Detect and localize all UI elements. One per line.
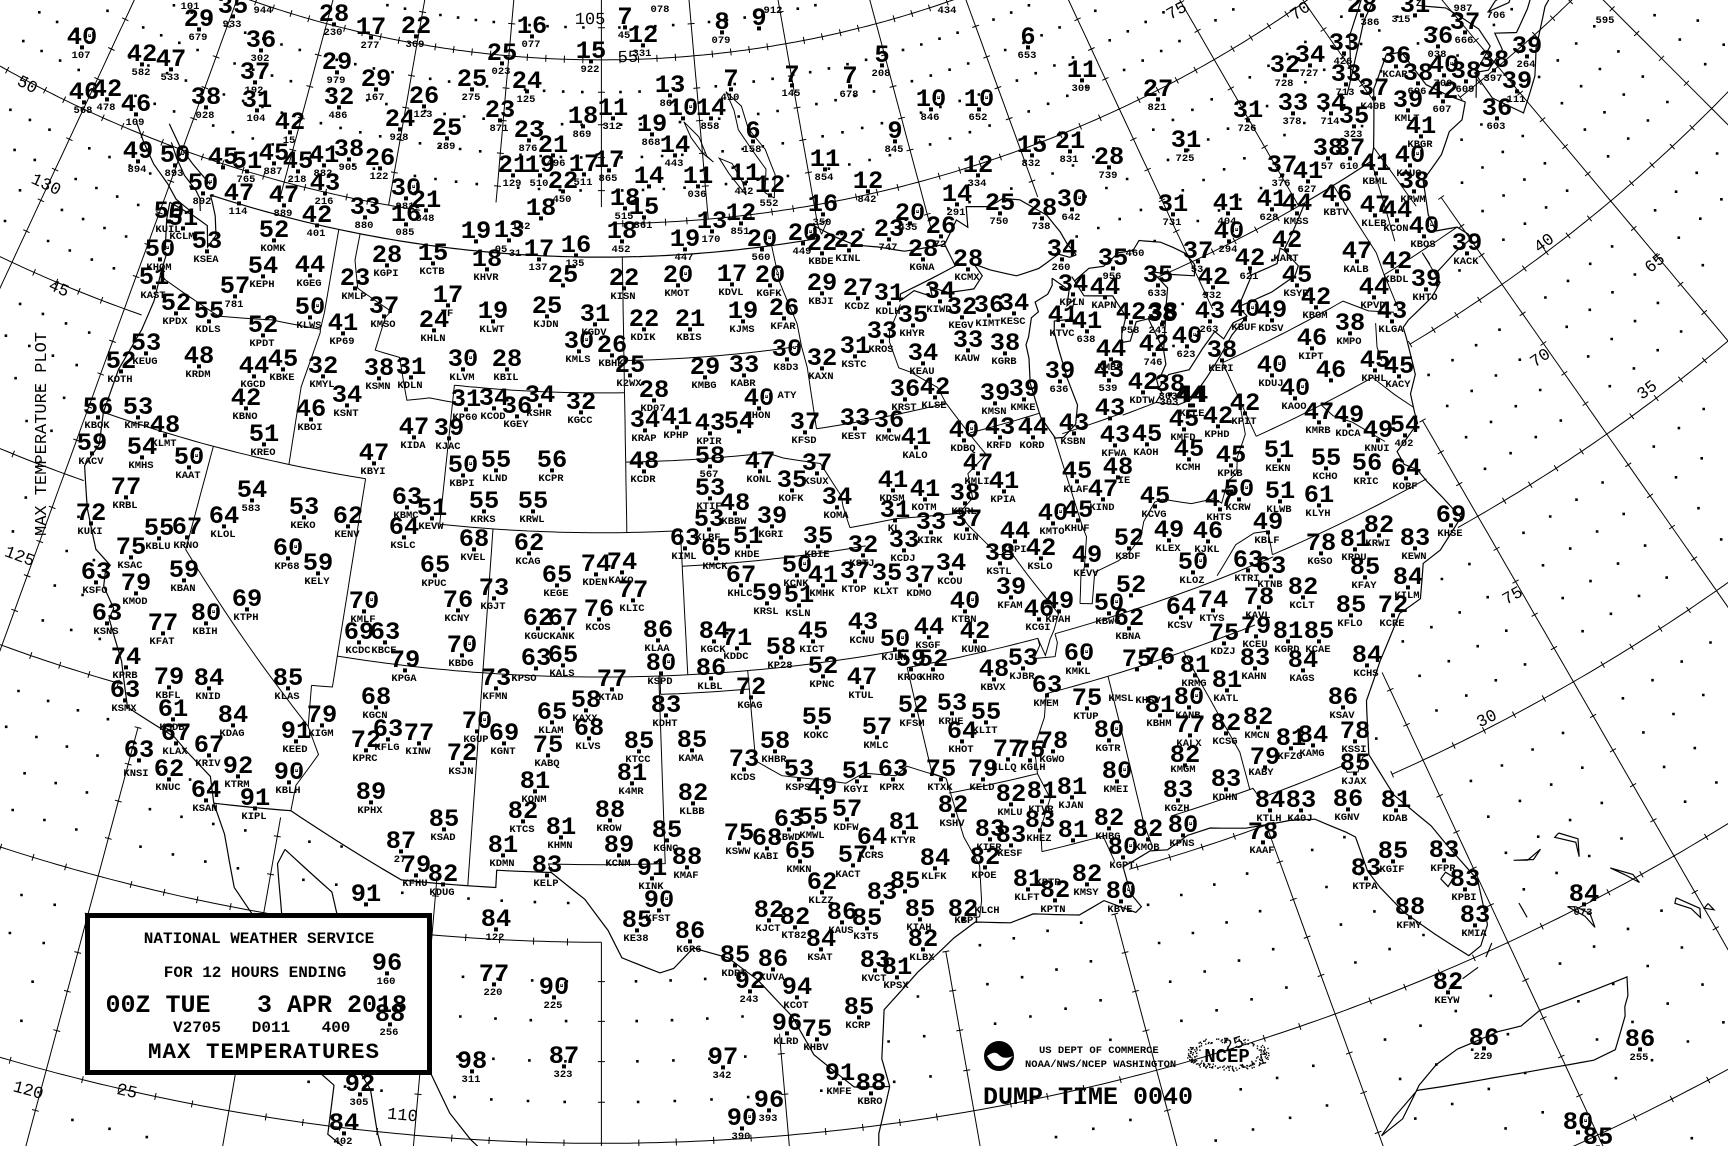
svg-text:378: 378 <box>1283 116 1302 128</box>
svg-text:KALO: KALO <box>902 450 927 462</box>
svg-text:KSJN: KSJN <box>448 766 473 778</box>
svg-text:KHSV: KHSV <box>1135 695 1161 707</box>
svg-text:KTAD: KTAD <box>598 692 623 704</box>
svg-text:KISN: KISN <box>610 291 635 303</box>
svg-text:KHDE: KHDE <box>734 549 759 561</box>
svg-text:167: 167 <box>366 92 385 104</box>
svg-text:KLBX: KLBX <box>909 952 935 964</box>
svg-text:KESC: KESC <box>1000 316 1026 328</box>
svg-text:KFMY: KFMY <box>1396 920 1422 932</box>
svg-text:KREO: KREO <box>250 447 275 459</box>
svg-text:05: 05 <box>495 244 508 256</box>
svg-text:KLFT: KLFT <box>1014 892 1039 904</box>
svg-text:KMKE: KMKE <box>1010 402 1035 414</box>
svg-text:101: 101 <box>181 1 200 13</box>
svg-text:435: 435 <box>899 222 918 234</box>
svg-text:854: 854 <box>815 172 834 184</box>
svg-text:342: 342 <box>713 1070 732 1082</box>
svg-text:KLFK: KLFK <box>921 871 947 883</box>
svg-text:277: 277 <box>361 40 380 52</box>
svg-text:31: 31 <box>509 248 522 260</box>
svg-text:KAAT: KAAT <box>175 470 200 482</box>
svg-text:726: 726 <box>1238 123 1257 135</box>
svg-text:KACV: KACV <box>78 456 104 468</box>
svg-text:KERI: KERI <box>1208 363 1233 375</box>
svg-text:KBLU: KBLU <box>145 541 170 553</box>
svg-text:KGJT: KGJT <box>480 601 505 613</box>
svg-text:KBOI: KBOI <box>297 422 322 434</box>
svg-text:229: 229 <box>1474 1051 1493 1063</box>
svg-text:KMGM: KMGM <box>1170 764 1195 776</box>
svg-text:831: 831 <box>1060 154 1079 166</box>
svg-text:568: 568 <box>74 105 93 117</box>
svg-text:KUKI: KUKI <box>77 526 102 538</box>
svg-text:KSPD: KSPD <box>647 676 672 688</box>
svg-text:KDHT: KDHT <box>652 718 677 730</box>
svg-text:KLLQ: KLLQ <box>991 762 1016 774</box>
svg-text:078: 078 <box>651 4 670 16</box>
svg-text:KFSM: KFSM <box>899 718 924 730</box>
svg-text:KHSE: KHSE <box>1437 528 1462 540</box>
svg-text:KPNS: KPNS <box>1169 838 1194 850</box>
svg-text:633: 633 <box>1148 288 1167 300</box>
svg-text:511: 511 <box>574 177 593 189</box>
svg-text:KABY: KABY <box>1248 767 1274 779</box>
svg-text:442: 442 <box>735 186 754 198</box>
svg-text:KBGM: KBGM <box>1302 310 1327 322</box>
svg-text:652: 652 <box>969 112 988 124</box>
svg-text:880: 880 <box>355 220 374 232</box>
svg-text:KDCA: KDCA <box>1335 428 1361 440</box>
svg-text:KDFW: KDFW <box>833 822 859 834</box>
svg-text:KMOB: KMOB <box>1134 842 1160 854</box>
svg-text:KDTW: KDTW <box>1129 395 1155 407</box>
svg-text:KDIK: KDIK <box>630 332 656 344</box>
svg-text:KRAP: KRAP <box>631 433 656 445</box>
svg-text:263: 263 <box>1200 324 1219 336</box>
svg-text:KDSV: KDSV <box>1258 323 1284 335</box>
svg-text:KORF: KORF <box>1392 481 1417 493</box>
svg-text:KELP: KELP <box>533 878 558 890</box>
svg-text:KOMA: KOMA <box>823 510 849 522</box>
svg-text:KCNU: KCNU <box>849 635 874 647</box>
svg-text:MAX TEMPERATURES: MAX TEMPERATURES <box>148 1039 380 1065</box>
svg-text:KCSV: KCSV <box>1167 620 1193 632</box>
svg-text:401: 401 <box>307 228 326 240</box>
svg-text:KDEN: KDEN <box>582 577 607 589</box>
svg-text:145: 145 <box>782 88 801 100</box>
svg-text:893: 893 <box>165 168 184 180</box>
svg-text:KAMA: KAMA <box>678 753 704 765</box>
svg-text:KGYI: KGYI <box>843 784 868 796</box>
svg-text:KDAB: KDAB <box>1382 813 1408 825</box>
svg-text:170: 170 <box>702 234 721 246</box>
svg-text:KCON: KCON <box>1383 223 1408 235</box>
svg-text:KJDN: KJDN <box>533 319 558 331</box>
svg-text:KFSD: KFSD <box>791 435 816 447</box>
svg-text:KORD: KORD <box>1019 440 1044 452</box>
svg-text:KMLS: KMLS <box>565 354 590 366</box>
svg-text:KRBL: KRBL <box>112 500 137 512</box>
svg-text:129: 129 <box>503 178 522 190</box>
svg-text:KBKE: KBKE <box>269 372 294 384</box>
svg-text:KEGE: KEGE <box>543 588 568 600</box>
svg-text:243: 243 <box>740 994 759 1006</box>
svg-text:KAAF: KAAF <box>1249 845 1274 857</box>
svg-text:KLGA: KLGA <box>1378 324 1404 336</box>
svg-text:KTUL: KTUL <box>848 690 873 702</box>
svg-text:KCRP: KCRP <box>845 1020 870 1032</box>
svg-text:160: 160 <box>377 976 396 988</box>
svg-text:KLAF: KLAF <box>1063 484 1088 496</box>
svg-text:KLBB: KLBB <box>679 806 705 818</box>
svg-text:NOAA/NWS/NCEP WASHINGTON: NOAA/NWS/NCEP WASHINGTON <box>1025 1059 1176 1071</box>
svg-text:KPHD: KPHD <box>1204 429 1229 441</box>
svg-text:KROS: KROS <box>868 344 893 356</box>
svg-text:706: 706 <box>1487 10 1506 22</box>
svg-text:KP60: KP60 <box>452 412 477 424</box>
svg-text:289: 289 <box>437 141 456 153</box>
svg-text:KPDX: KPDX <box>162 316 188 328</box>
svg-text:KBYI: KBYI <box>360 466 385 478</box>
svg-text:603: 603 <box>1487 121 1506 133</box>
svg-text:636: 636 <box>1050 384 1069 396</box>
svg-text:KP69: KP69 <box>329 336 354 348</box>
svg-text:MAX TEMPERATURE PLOT: MAX TEMPERATURE PLOT <box>33 332 52 536</box>
svg-text:225: 225 <box>544 1000 563 1012</box>
svg-text:US DEPT OF COMMERCE: US DEPT OF COMMERCE <box>1039 1045 1159 1057</box>
svg-text:KLAS: KLAS <box>274 691 299 703</box>
svg-text:628: 628 <box>1260 212 1279 224</box>
svg-text:KDHN: KDHN <box>1212 792 1237 804</box>
svg-text:KRSL: KRSL <box>753 606 778 618</box>
svg-text:KIDA: KIDA <box>400 440 426 452</box>
svg-text:871: 871 <box>490 123 509 135</box>
svg-text:K40J: K40J <box>1287 813 1312 825</box>
svg-text:496: 496 <box>547 158 566 170</box>
svg-text:KELY: KELY <box>304 576 330 588</box>
svg-text:397: 397 <box>1484 73 1503 85</box>
svg-text:653: 653 <box>1018 50 1037 62</box>
svg-text:KLYH: KLYH <box>1305 508 1330 520</box>
svg-text:KCMH: KCMH <box>1175 462 1200 474</box>
svg-text:KGIF: KGIF <box>1379 864 1404 876</box>
svg-text:KELD: KELD <box>969 782 994 794</box>
svg-text:845: 845 <box>885 144 904 156</box>
svg-text:KMLP: KMLP <box>341 291 366 303</box>
svg-text:KCTB: KCTB <box>419 266 445 278</box>
svg-text:KSLO: KSLO <box>1027 561 1052 573</box>
svg-text:230: 230 <box>324 27 343 39</box>
svg-text:KEKO: KEKO <box>290 520 315 532</box>
svg-text:KSHV: KSHV <box>939 818 965 830</box>
svg-text:KHLC: KHLC <box>727 588 753 600</box>
svg-text:KMAF: KMAF <box>673 870 698 882</box>
svg-text:KRIV: KRIV <box>195 758 221 770</box>
svg-text:KIML: KIML <box>671 551 696 563</box>
svg-text:125: 125 <box>517 94 536 106</box>
svg-text:V2705: V2705 <box>173 1019 221 1037</box>
svg-text:KBVE: KBVE <box>1107 904 1132 916</box>
svg-text:208: 208 <box>872 68 891 80</box>
svg-text:KBIH: KBIH <box>192 626 217 638</box>
svg-text:KAHN: KAHN <box>1241 671 1266 683</box>
svg-text:KRIC: KRIC <box>1353 476 1379 488</box>
svg-text:KBIL: KBIL <box>493 372 518 384</box>
svg-text:KMSL: KMSL <box>1108 693 1133 705</box>
svg-text:739: 739 <box>1099 170 1118 182</box>
svg-text:KT82: KT82 <box>781 930 806 942</box>
svg-text:255: 255 <box>1630 1052 1649 1064</box>
svg-text:105: 105 <box>575 11 606 30</box>
svg-text:KTPA: KTPA <box>1352 881 1378 893</box>
svg-text:K6R6: K6R6 <box>676 944 701 956</box>
svg-text:KALS: KALS <box>549 668 574 680</box>
svg-text:KBIS: KBIS <box>676 332 701 344</box>
svg-text:028: 028 <box>196 110 215 122</box>
svg-text:KD07: KD07 <box>640 403 665 415</box>
svg-text:KONM: KONM <box>521 794 546 806</box>
svg-text:KSAT: KSAT <box>807 952 832 964</box>
svg-text:KLWT: KLWT <box>479 324 504 336</box>
svg-text:220: 220 <box>484 987 503 999</box>
svg-text:848: 848 <box>416 213 435 225</box>
svg-text:KGLH: KGLH <box>1020 762 1045 774</box>
svg-text:D011: D011 <box>252 1019 290 1037</box>
svg-text:928: 928 <box>390 132 409 144</box>
svg-text:KGRB: KGRB <box>991 356 1017 368</box>
svg-text:738: 738 <box>1032 221 1051 233</box>
svg-text:621: 621 <box>1240 271 1259 283</box>
svg-text:KTRM: KTRM <box>224 779 249 791</box>
svg-text:987: 987 <box>1454 3 1473 15</box>
svg-text:933: 933 <box>223 19 242 31</box>
svg-text:KMEI: KMEI <box>1103 784 1128 796</box>
svg-text:KEKN: KEKN <box>1265 463 1290 475</box>
svg-text:KACY: KACY <box>1385 379 1411 391</box>
svg-text:KJMS: KJMS <box>729 324 754 336</box>
svg-text:KDMO: KDMO <box>906 588 931 600</box>
svg-text:KCSG: KCSG <box>1212 736 1237 748</box>
svg-text:KHLN: KHLN <box>420 333 445 345</box>
svg-text:KLWS: KLWS <box>296 320 321 332</box>
svg-text:KDLN: KDLN <box>397 380 422 392</box>
svg-text:KEVW: KEVW <box>418 521 444 533</box>
svg-text:305: 305 <box>350 1097 369 1109</box>
svg-text:KBDG: KBDG <box>448 658 473 670</box>
svg-text:KPHX: KPHX <box>357 805 383 817</box>
svg-text:KMOD: KMOD <box>122 596 147 608</box>
svg-text:KPOE: KPOE <box>971 870 996 882</box>
svg-text:402: 402 <box>1395 438 1414 450</box>
svg-text:402: 402 <box>334 1136 353 1146</box>
svg-text:KSFO: KSFO <box>82 585 107 597</box>
svg-text:KEVV: KEVV <box>1073 568 1099 580</box>
svg-text:KCHS: KCHS <box>1353 668 1378 680</box>
svg-text:369: 369 <box>406 39 425 51</box>
svg-text:KGEY: KGEY <box>503 419 529 431</box>
svg-text:KTOP: KTOP <box>841 584 866 596</box>
svg-text:KBRO: KBRO <box>857 1096 882 1108</box>
svg-text:KAMG: KAMG <box>1299 748 1324 760</box>
svg-text:KHVR: KHVR <box>473 272 499 284</box>
svg-text:KGCC: KGCC <box>567 415 593 427</box>
svg-text:KDMN: KDMN <box>489 858 514 870</box>
svg-text:KUIN: KUIN <box>953 532 978 544</box>
svg-text:KBJI: KBJI <box>808 296 833 308</box>
svg-text:KPIT: KPIT <box>1231 416 1256 428</box>
svg-text:KBDE: KBDE <box>808 256 833 268</box>
svg-text:KCRS: KCRS <box>858 850 883 862</box>
svg-text:KOKC: KOKC <box>803 730 829 742</box>
svg-text:678: 678 <box>840 89 859 101</box>
svg-text:KSBN: KSBN <box>1060 436 1085 448</box>
svg-text:KAXN: KAXN <box>808 371 833 383</box>
svg-text:714: 714 <box>1321 116 1340 128</box>
svg-text:104: 104 <box>247 113 266 125</box>
svg-text:KSEA: KSEA <box>193 254 219 266</box>
svg-text:KBLH: KBLH <box>275 785 300 797</box>
svg-text:533: 533 <box>161 72 180 84</box>
svg-text:KPGA: KPGA <box>391 673 417 685</box>
svg-text:944: 944 <box>254 5 273 17</box>
svg-text:KLOL: KLOL <box>210 529 235 541</box>
svg-text:386: 386 <box>1361 17 1380 29</box>
svg-text:KCPR: KCPR <box>538 473 564 485</box>
svg-text:390: 390 <box>732 1131 751 1143</box>
svg-text:KMCK: KMCK <box>702 561 728 573</box>
svg-text:256: 256 <box>380 1027 399 1039</box>
svg-text:KRST: KRST <box>891 402 916 414</box>
svg-text:KGUP: KGUP <box>463 734 488 746</box>
svg-text:KSNS: KSNS <box>93 626 118 638</box>
svg-text:KCDR: KCDR <box>630 474 656 486</box>
svg-text:510: 510 <box>530 178 549 190</box>
svg-text:KPNC: KPNC <box>809 679 835 691</box>
svg-text:KSLC: KSLC <box>390 540 416 552</box>
svg-text:452: 452 <box>612 244 631 256</box>
svg-text:KSHR: KSHR <box>526 408 552 420</box>
svg-text:KE38: KE38 <box>623 933 648 945</box>
svg-text:KSTC: KSTC <box>841 359 867 371</box>
svg-text:727: 727 <box>1300 68 1319 80</box>
svg-text:P58: P58 <box>1121 325 1140 337</box>
svg-text:KAOH: KAOH <box>1133 447 1158 459</box>
svg-text:KCOS: KCOS <box>585 622 610 634</box>
svg-text:309: 309 <box>1072 83 1091 95</box>
svg-text:858: 858 <box>701 121 720 133</box>
svg-text:KPSX: KPSX <box>883 980 909 992</box>
svg-text:KBPT: KBPT <box>954 915 979 927</box>
svg-text:KDUG: KDUG <box>429 887 454 899</box>
svg-text:868: 868 <box>642 137 661 149</box>
svg-text:731: 731 <box>1163 217 1182 229</box>
svg-text:KACT: KACT <box>835 869 860 881</box>
svg-text:KBML: KBML <box>1362 176 1387 188</box>
svg-text:393: 393 <box>759 1113 778 1125</box>
svg-text:KEPH: KEPH <box>249 279 274 291</box>
svg-text:KSAN: KSAN <box>192 803 217 815</box>
svg-text:303: 303 <box>1159 391 1178 403</box>
svg-text:109: 109 <box>126 117 145 129</box>
svg-text:KHTO: KHTO <box>1412 292 1437 304</box>
svg-text:666: 666 <box>1455 35 1474 47</box>
svg-text:KMSY: KMSY <box>1073 887 1099 899</box>
svg-text:KMSN: KMSN <box>981 406 1006 418</box>
svg-text:KONL: KONL <box>746 474 771 486</box>
svg-text:KCDC: KCDC <box>345 645 371 657</box>
svg-text:KEWN: KEWN <box>1401 551 1426 563</box>
svg-text:KATL: KATL <box>1213 693 1238 705</box>
svg-text:073: 073 <box>1574 907 1593 919</box>
svg-text:142: 142 <box>512 221 531 233</box>
svg-text:275: 275 <box>462 92 481 104</box>
svg-text:KBTR: KBTR <box>1035 877 1061 889</box>
svg-text:KIRK: KIRK <box>917 535 943 547</box>
svg-text:KFAR: KFAR <box>770 321 796 333</box>
svg-text:K8D3: K8D3 <box>773 362 798 374</box>
svg-text:KPAH: KPAH <box>1045 614 1070 626</box>
svg-text:KCNM: KCNM <box>605 858 630 870</box>
svg-text:610: 610 <box>1340 161 1359 173</box>
svg-text:KMFR: KMFR <box>124 420 150 432</box>
svg-text:KFLO: KFLO <box>1337 618 1362 630</box>
svg-text:846: 846 <box>921 112 940 124</box>
svg-text:KTXK: KTXK <box>927 782 953 794</box>
svg-text:679: 679 <box>189 32 208 44</box>
svg-text:443: 443 <box>665 158 684 170</box>
svg-text:478: 478 <box>97 102 116 114</box>
svg-text:077: 077 <box>522 39 541 51</box>
svg-text:KMFE: KMFE <box>826 1086 851 1098</box>
svg-text:KFMN: KFMN <box>482 691 507 703</box>
svg-text:595: 595 <box>1596 15 1615 27</box>
svg-text:KCNY: KCNY <box>444 613 470 625</box>
svg-text:781: 781 <box>225 299 244 311</box>
svg-text:023: 023 <box>492 66 511 78</box>
svg-text:036: 036 <box>688 189 707 201</box>
svg-text:KLBL: KLBL <box>697 681 722 693</box>
svg-text:912: 912 <box>764 5 783 17</box>
svg-text:KSDF: KSDF <box>1115 551 1140 563</box>
svg-text:KBTV: KBTV <box>1323 207 1349 219</box>
svg-text:323: 323 <box>554 1069 573 1081</box>
svg-text:315: 315 <box>1392 14 1411 26</box>
svg-text:KMBG: KMBG <box>691 380 716 392</box>
svg-text:KGPT: KGPT <box>1109 860 1134 872</box>
svg-text:079: 079 <box>712 35 731 47</box>
svg-text:KEED: KEED <box>282 744 307 756</box>
svg-text:KCLT: KCLT <box>1289 600 1314 612</box>
svg-text:KMEM: KMEM <box>1033 698 1058 710</box>
svg-text:KP28: KP28 <box>767 660 792 672</box>
svg-text:KSWW: KSWW <box>725 846 751 858</box>
svg-text:137: 137 <box>529 262 548 274</box>
svg-text:110: 110 <box>386 1106 418 1128</box>
svg-text:KPSO: KPSO <box>511 673 536 685</box>
svg-text:KGSO: KGSO <box>1307 556 1332 568</box>
svg-text:KDDC: KDDC <box>723 651 749 663</box>
svg-text:KDLS: KDLS <box>195 324 220 336</box>
svg-text:KIPL: KIPL <box>241 811 266 823</box>
svg-text:623: 623 <box>1177 349 1196 361</box>
svg-text:KINW: KINW <box>405 746 431 758</box>
svg-text:KGNT: KGNT <box>490 746 515 758</box>
svg-text:KRNO: KRNO <box>173 540 198 552</box>
svg-text:KGAG: KGAG <box>737 700 762 712</box>
svg-text:334: 334 <box>968 178 987 190</box>
svg-text:400: 400 <box>322 1019 351 1037</box>
